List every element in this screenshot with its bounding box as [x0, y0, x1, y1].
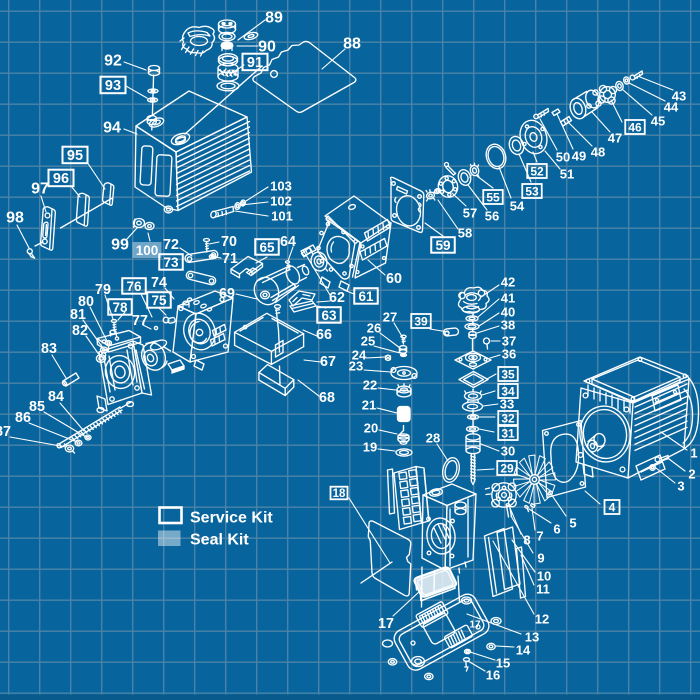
svg-text:60: 60	[386, 271, 402, 287]
svg-text:52: 52	[530, 164, 544, 178]
svg-text:6: 6	[553, 522, 560, 537]
svg-text:28: 28	[426, 431, 440, 446]
svg-text:63: 63	[321, 308, 337, 323]
svg-text:102: 102	[270, 194, 292, 209]
svg-text:1: 1	[690, 446, 697, 461]
svg-text:27: 27	[383, 310, 397, 325]
svg-text:95: 95	[67, 148, 83, 164]
svg-text:38: 38	[501, 318, 515, 333]
svg-text:Service Kit: Service Kit	[190, 510, 273, 527]
svg-text:47: 47	[608, 131, 622, 146]
svg-text:55: 55	[486, 190, 500, 204]
svg-text:42: 42	[501, 275, 515, 290]
svg-text:100: 100	[136, 243, 159, 258]
svg-text:86: 86	[15, 410, 31, 426]
svg-text:56: 56	[485, 209, 499, 224]
svg-text:50: 50	[556, 150, 570, 165]
svg-text:101: 101	[271, 209, 293, 224]
svg-text:35: 35	[501, 367, 515, 381]
svg-text:48: 48	[591, 145, 605, 160]
svg-text:2: 2	[688, 467, 695, 482]
svg-text:65: 65	[259, 240, 275, 255]
svg-text:31: 31	[501, 426, 515, 440]
svg-text:77: 77	[132, 313, 148, 329]
svg-text:64: 64	[280, 234, 296, 250]
svg-text:46: 46	[628, 120, 642, 134]
svg-text:17: 17	[469, 620, 481, 631]
svg-text:78: 78	[112, 300, 128, 315]
svg-text:54: 54	[510, 199, 525, 214]
svg-text:88: 88	[343, 36, 361, 53]
svg-text:Seal Kit: Seal Kit	[190, 532, 249, 549]
svg-text:20: 20	[364, 421, 378, 436]
svg-text:69: 69	[219, 286, 235, 302]
svg-text:82: 82	[72, 323, 88, 339]
svg-text:72: 72	[163, 237, 179, 253]
svg-text:59: 59	[435, 238, 450, 253]
svg-text:89: 89	[265, 10, 283, 27]
svg-text:70: 70	[221, 234, 237, 250]
svg-text:5: 5	[569, 516, 576, 531]
svg-text:39: 39	[414, 314, 428, 328]
svg-text:61: 61	[358, 289, 374, 304]
svg-text:93: 93	[105, 78, 121, 94]
svg-text:71: 71	[222, 251, 238, 267]
svg-text:4: 4	[609, 500, 616, 514]
svg-text:25: 25	[361, 334, 375, 349]
svg-text:23: 23	[349, 359, 363, 374]
svg-text:87: 87	[0, 424, 11, 440]
svg-text:43: 43	[672, 89, 686, 104]
svg-text:14: 14	[516, 643, 531, 658]
svg-text:98: 98	[6, 210, 24, 227]
svg-text:36: 36	[502, 347, 516, 362]
svg-text:12: 12	[535, 612, 549, 627]
svg-text:96: 96	[53, 171, 69, 187]
svg-text:3: 3	[677, 479, 684, 494]
svg-text:51: 51	[560, 167, 574, 182]
svg-text:11: 11	[536, 582, 550, 597]
svg-text:33: 33	[500, 397, 514, 412]
svg-text:49: 49	[572, 149, 586, 164]
svg-text:19: 19	[363, 440, 377, 455]
svg-text:79: 79	[95, 282, 111, 298]
svg-text:75: 75	[151, 293, 167, 308]
svg-text:18: 18	[333, 488, 346, 500]
svg-text:66: 66	[316, 327, 332, 343]
svg-text:85: 85	[29, 399, 45, 415]
svg-text:103: 103	[270, 179, 292, 194]
svg-text:21: 21	[362, 398, 376, 413]
svg-text:92: 92	[104, 53, 122, 70]
svg-text:22: 22	[363, 378, 377, 393]
svg-text:58: 58	[458, 226, 472, 241]
svg-text:29: 29	[500, 461, 514, 475]
svg-text:83: 83	[41, 341, 57, 357]
svg-text:97: 97	[31, 181, 49, 198]
svg-text:41: 41	[501, 291, 515, 306]
svg-text:57: 57	[463, 206, 477, 221]
svg-text:99: 99	[111, 237, 129, 254]
svg-text:76: 76	[126, 279, 142, 294]
svg-text:68: 68	[319, 390, 335, 406]
svg-text:30: 30	[501, 444, 515, 459]
svg-text:9: 9	[537, 551, 544, 566]
svg-text:7: 7	[536, 529, 543, 544]
svg-text:17: 17	[378, 616, 394, 632]
svg-text:84: 84	[48, 389, 64, 405]
svg-text:8: 8	[523, 533, 530, 548]
svg-text:73: 73	[163, 255, 179, 270]
svg-text:32: 32	[501, 411, 515, 425]
svg-text:45: 45	[651, 114, 665, 129]
svg-text:53: 53	[525, 184, 539, 198]
svg-text:94: 94	[103, 120, 121, 137]
svg-text:91: 91	[247, 55, 263, 71]
svg-text:74: 74	[151, 275, 167, 291]
svg-text:62: 62	[329, 290, 345, 306]
svg-text:16: 16	[486, 668, 500, 683]
svg-text:67: 67	[320, 354, 336, 370]
svg-text:81: 81	[70, 307, 86, 323]
